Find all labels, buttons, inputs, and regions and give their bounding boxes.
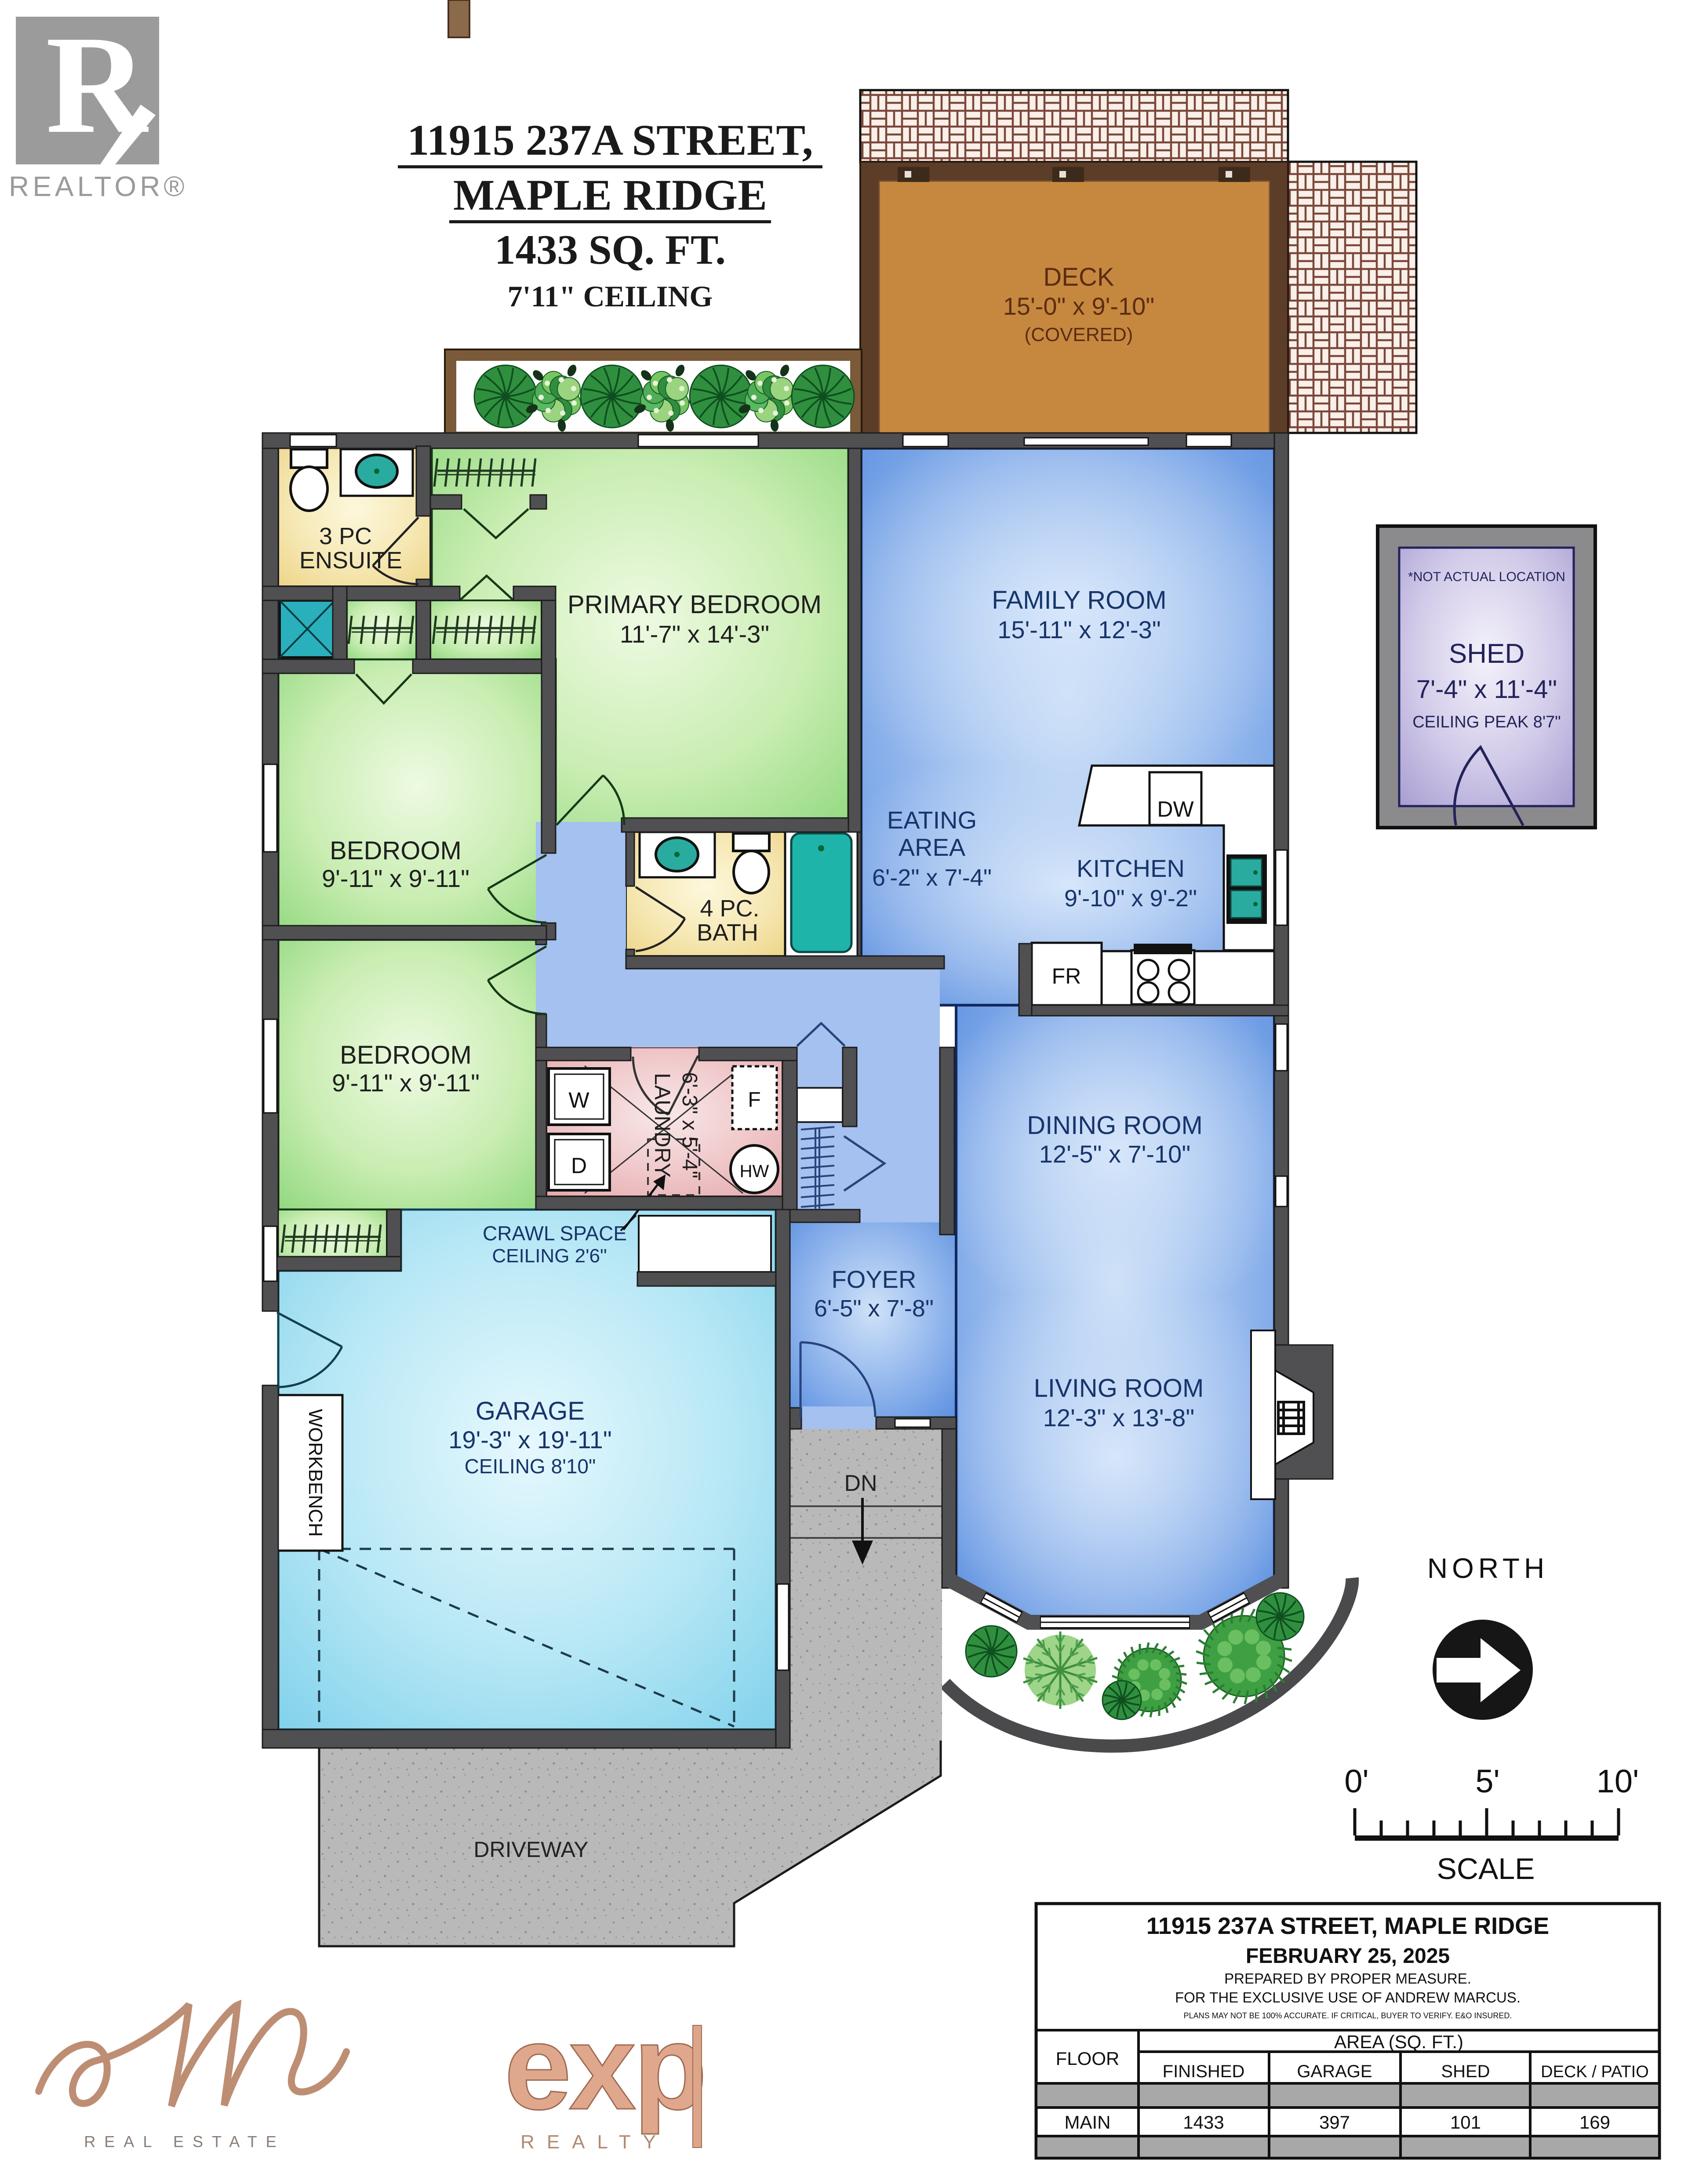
svg-text:LIVING ROOM: LIVING ROOM [1034, 1374, 1204, 1403]
svg-text:BEDROOM: BEDROOM [340, 1041, 472, 1069]
svg-text:101: 101 [1450, 2112, 1481, 2133]
svg-text:FOR THE EXCLUSIVE USE OF ANDRE: FOR THE EXCLUSIVE USE OF ANDREW MARCUS. [1175, 1989, 1521, 2006]
svg-text:9'-11" x 9'-11": 9'-11" x 9'-11" [332, 1069, 480, 1097]
svg-text:CEILING PEAK 8'7": CEILING PEAK 8'7" [1412, 713, 1561, 731]
svg-text:19'-3" x 19'-11": 19'-3" x 19'-11" [448, 1426, 611, 1454]
svg-text:*NOT ACTUAL LOCATION: *NOT ACTUAL LOCATION [1408, 570, 1565, 584]
svg-text:REALTY: REALTY [520, 2131, 668, 2153]
svg-text:LAUNDRY: LAUNDRY [650, 1073, 675, 1177]
svg-text:4 PC.: 4 PC. [700, 895, 759, 922]
svg-text:F: F [748, 1088, 760, 1112]
svg-text:PREPARED BY PROPER MEASURE.: PREPARED BY PROPER MEASURE. [1224, 1970, 1471, 1987]
svg-text:12'-3" x 13'-8": 12'-3" x 13'-8" [1043, 1404, 1194, 1432]
svg-text:6'-2" x 7'-4": 6'-2" x 7'-4" [872, 865, 992, 891]
svg-text:FEBRUARY 25, 2025: FEBRUARY 25, 2025 [1246, 1944, 1450, 1968]
svg-text:PRIMARY BEDROOM: PRIMARY BEDROOM [568, 590, 822, 619]
svg-text:1433: 1433 [1183, 2112, 1224, 2133]
svg-text:ENSUITE: ENSUITE [299, 547, 402, 574]
svg-text:DRIVEWAY: DRIVEWAY [473, 1837, 588, 1862]
svg-text:AREA: AREA [899, 833, 966, 861]
svg-text:(COVERED): (COVERED) [1025, 324, 1133, 345]
svg-text:5': 5' [1475, 1763, 1499, 1799]
svg-text:REALTOR®: REALTOR® [9, 171, 188, 202]
svg-text:EATING: EATING [887, 806, 977, 834]
svg-text:9'-11" x 9'-11": 9'-11" x 9'-11" [322, 865, 469, 892]
svg-text:6'-3" x 5'-4": 6'-3" x 5'-4" [678, 1072, 701, 1178]
svg-text:WORKBENCH: WORKBENCH [305, 1409, 326, 1537]
svg-text:W: W [568, 1088, 589, 1112]
svg-text:DECK: DECK [1043, 263, 1114, 291]
svg-text:9'-10" x 9'-2": 9'-10" x 9'-2" [1064, 885, 1197, 912]
svg-text:exp: exp [504, 2000, 705, 2135]
svg-text:3 PC: 3 PC [319, 523, 372, 549]
svg-text:11915 237A STREET, MAPLE RIDGE: 11915 237A STREET, MAPLE RIDGE [1146, 1913, 1549, 1939]
svg-text:FOYER: FOYER [832, 1265, 917, 1293]
svg-text:10': 10' [1597, 1763, 1639, 1799]
svg-text:GARAGE: GARAGE [1297, 2062, 1372, 2081]
svg-text:397: 397 [1319, 2112, 1350, 2133]
svg-text:11915 237A STREET,: 11915 237A STREET, [407, 116, 813, 164]
svg-text:FLOOR: FLOOR [1056, 2048, 1120, 2069]
svg-text:MAIN: MAIN [1065, 2112, 1111, 2133]
svg-text:BATH: BATH [697, 919, 758, 946]
svg-text:KITCHEN: KITCHEN [1077, 854, 1185, 882]
svg-text:0': 0' [1344, 1763, 1368, 1799]
svg-text:6'-5" x 7'-8": 6'-5" x 7'-8" [814, 1295, 934, 1322]
svg-text:SHED: SHED [1441, 2062, 1490, 2081]
svg-text:CEILING 8'10": CEILING 8'10" [465, 1455, 596, 1478]
svg-text:GARAGE: GARAGE [476, 1397, 585, 1425]
svg-text:DW: DW [1157, 797, 1194, 821]
svg-text:NORTH: NORTH [1427, 1552, 1549, 1584]
svg-text:CEILING 2'6": CEILING 2'6" [492, 1245, 607, 1267]
svg-text:11'-7" x 14'-3": 11'-7" x 14'-3" [620, 620, 769, 648]
svg-text:DECK / PATIO: DECK / PATIO [1541, 2063, 1649, 2081]
svg-text:FAMILY ROOM: FAMILY ROOM [992, 586, 1166, 614]
svg-text:CRAWL SPACE: CRAWL SPACE [483, 1222, 627, 1245]
svg-text:12'-5" x 7'-10": 12'-5" x 7'-10" [1039, 1140, 1190, 1168]
svg-text:PLANS MAY NOT BE 100% ACCURATE: PLANS MAY NOT BE 100% ACCURATE. IF CRITI… [1184, 2011, 1512, 2020]
svg-text:HW: HW [740, 1162, 769, 1181]
svg-text:FINISHED: FINISHED [1163, 2062, 1245, 2081]
svg-text:169: 169 [1579, 2112, 1610, 2133]
svg-text:AREA (SQ. FT.): AREA (SQ. FT.) [1334, 2031, 1463, 2052]
svg-text:DN: DN [844, 1471, 877, 1496]
svg-text:15'-0" x 9'-10": 15'-0" x 9'-10" [1003, 292, 1154, 320]
svg-text:SHED: SHED [1449, 639, 1524, 669]
svg-text:15'-11" x 12'-3": 15'-11" x 12'-3" [997, 616, 1160, 643]
svg-text:D: D [571, 1153, 587, 1178]
svg-text:SCALE: SCALE [1437, 1852, 1535, 1886]
svg-text:1433 SQ. FT.: 1433 SQ. FT. [495, 226, 726, 273]
svg-text:DINING ROOM: DINING ROOM [1027, 1111, 1203, 1140]
svg-text:7'-4" x 11'-4": 7'-4" x 11'-4" [1416, 675, 1557, 704]
svg-text:BEDROOM: BEDROOM [330, 836, 462, 865]
svg-text:REAL ESTATE: REAL ESTATE [84, 2133, 285, 2151]
svg-text:MAPLE RIDGE: MAPLE RIDGE [453, 171, 767, 219]
svg-text:FR: FR [1052, 964, 1081, 988]
svg-text:7'11" CEILING: 7'11" CEILING [508, 280, 713, 313]
